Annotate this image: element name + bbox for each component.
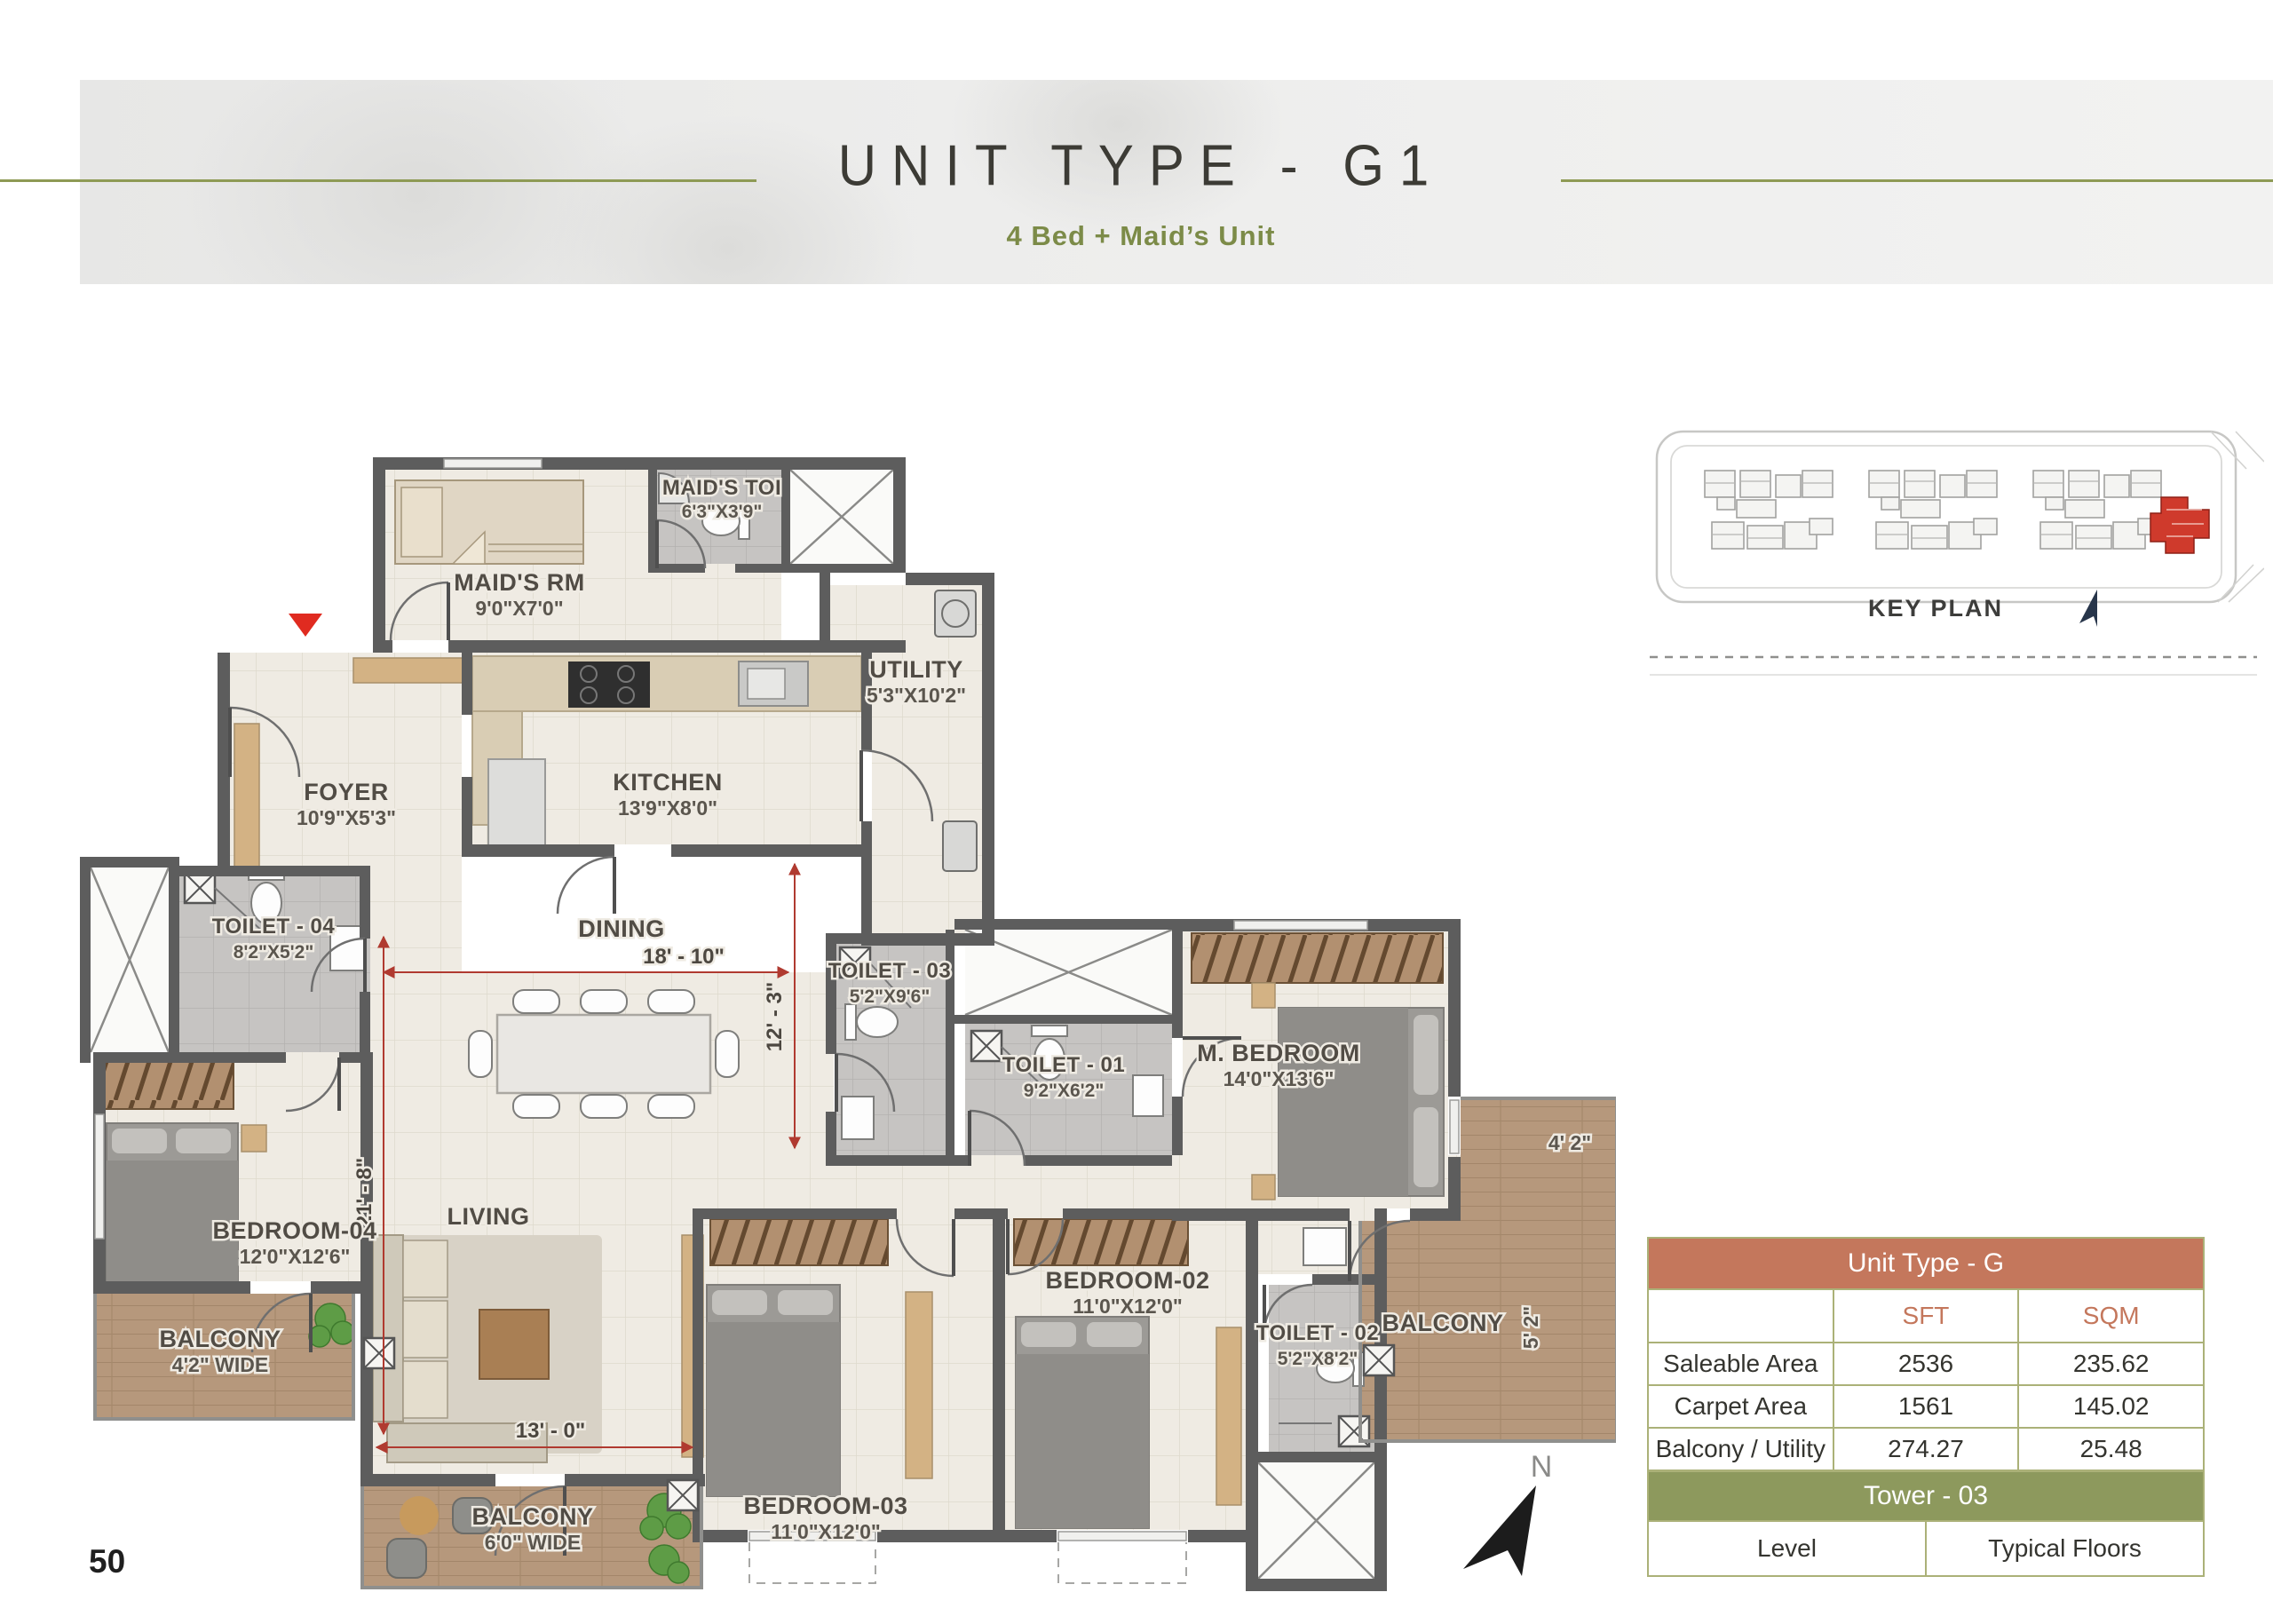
svg-text:5'2"X9'6": 5'2"X9'6" (850, 986, 931, 1007)
svg-text:LIVING: LIVING (447, 1203, 529, 1230)
svg-text:MAID'S TOI: MAID'S TOI (662, 476, 781, 500)
svg-text:TOILET - 01: TOILET - 01 (1002, 1053, 1125, 1077)
area-table-title: Unit Type - G (1648, 1238, 2204, 1289)
floor-plan: 18' - 10" 12' - 3" 21' - 8" 13' - 0" MAI… (71, 440, 1616, 1594)
svg-text:4'2" WIDE: 4'2" WIDE (172, 1353, 268, 1376)
svg-text:9'2"X6'2": 9'2"X6'2" (1024, 1081, 1105, 1101)
table-row: Carpet Area 1561 145.02 (1648, 1385, 2204, 1428)
area-table: Unit Type - G SFT SQM Saleable Area 2536… (1647, 1237, 2205, 1471)
dim-living-width: 13' - 0" (516, 1419, 585, 1443)
area-col-sft: SFT (1833, 1289, 2019, 1343)
table-row: Level Typical Floors (1648, 1521, 2204, 1576)
svg-text:BALCONY: BALCONY (1382, 1310, 1504, 1336)
room-living: LIVING (447, 1203, 529, 1230)
duct-box-icon (1364, 1345, 1394, 1375)
svg-text:5' 2": 5' 2" (1519, 1306, 1542, 1349)
svg-text:5'3"X10'2": 5'3"X10'2" (867, 684, 966, 707)
row-label: Balcony / Utility (1648, 1428, 1833, 1470)
svg-text:DINING: DINING (578, 915, 665, 942)
key-plan-north-icon (2079, 590, 2097, 627)
key-plan-highlight-unit (2150, 497, 2209, 553)
room-kitchen: KITCHEN13'9"X8'0" (613, 769, 723, 820)
tower-level: Level (1648, 1521, 1926, 1576)
svg-text:M. BEDROOM: M. BEDROOM (1197, 1040, 1360, 1066)
svg-text:4' 2": 4' 2" (1548, 1131, 1591, 1154)
svg-text:5'2"X8'2": 5'2"X8'2" (1278, 1349, 1358, 1369)
row-sft: 1561 (1833, 1385, 2019, 1428)
duct-box-icon (364, 1338, 394, 1368)
tower-floors: Typical Floors (1926, 1521, 2204, 1576)
svg-text:BALCONY: BALCONY (160, 1326, 281, 1352)
svg-text:KITCHEN: KITCHEN (613, 769, 723, 796)
page-number: 50 (89, 1543, 125, 1580)
dim-dining-width: 18' - 10" (643, 945, 725, 969)
svg-text:BEDROOM-04: BEDROOM-04 (212, 1217, 376, 1244)
key-plan: KEY PLAN (1643, 416, 2264, 682)
row-sft: 274.27 (1833, 1428, 2019, 1470)
svg-text:BALCONY: BALCONY (472, 1503, 594, 1530)
svg-text:13'9"X8'0": 13'9"X8'0" (618, 796, 717, 820)
header-rule-left (0, 179, 756, 182)
svg-text:6'3"X3'9": 6'3"X3'9" (682, 502, 763, 522)
duct-box-icon (668, 1480, 698, 1510)
svg-text:9'0"X7'0": 9'0"X7'0" (475, 597, 563, 620)
tower-table: Tower - 03 Level Typical Floors (1647, 1470, 2205, 1577)
row-sft: 2536 (1833, 1343, 2019, 1385)
page-title: UNIT TYPE - G1 (693, 132, 1589, 199)
row-sqm: 145.02 (2018, 1385, 2204, 1428)
svg-text:8'2"X5'2": 8'2"X5'2" (234, 942, 314, 963)
svg-text:UTILITY: UTILITY (869, 656, 963, 683)
svg-text:11'0"X12'0": 11'0"X12'0" (1073, 1295, 1183, 1318)
area-col-blank (1648, 1289, 1833, 1343)
svg-text:14'0"X13'6": 14'0"X13'6" (1224, 1067, 1334, 1090)
svg-text:TOILET - 03: TOILET - 03 (828, 959, 951, 983)
north-label: N (1531, 1450, 1553, 1484)
svg-text:TOILET - 02: TOILET - 02 (1256, 1321, 1379, 1345)
svg-text:11'0"X12'0": 11'0"X12'0" (771, 1520, 881, 1543)
key-plan-label: KEY PLAN (1868, 595, 2003, 622)
row-sqm: 25.48 (2018, 1428, 2204, 1470)
header-rule-right (1561, 179, 2273, 182)
dashed-projections (749, 1542, 1186, 1583)
room-balcony-left: BALCONY4'2" WIDE (160, 1326, 281, 1376)
dim-dining-height: 12' - 3" (763, 982, 787, 1051)
svg-text:BEDROOM-03: BEDROOM-03 (743, 1493, 907, 1519)
page-subtitle: 4 Bed + Maid’s Unit (693, 220, 1589, 252)
svg-text:10'9"X5'3": 10'9"X5'3" (297, 806, 396, 829)
room-dining: DINING (578, 915, 665, 942)
room-utility: UTILITY5'3"X10'2" (867, 656, 966, 707)
svg-text:12'0"X12'6": 12'0"X12'6" (240, 1245, 351, 1268)
row-sqm: 235.62 (2018, 1343, 2204, 1385)
row-label: Saleable Area (1648, 1343, 1833, 1385)
svg-text:FOYER: FOYER (304, 779, 389, 805)
svg-text:6'0" WIDE: 6'0" WIDE (485, 1531, 581, 1554)
brochure-page: UNIT TYPE - G1 4 Bed + Maid’s Unit (0, 0, 2273, 1624)
room-foyer: FOYER10'9"X5'3" (297, 779, 396, 829)
svg-text:BEDROOM-02: BEDROOM-02 (1045, 1267, 1209, 1294)
area-col-sqm: SQM (2018, 1289, 2204, 1343)
table-row: Balcony / Utility 274.27 25.48 (1648, 1428, 2204, 1470)
north-arrow-icon: N (1463, 1450, 1552, 1576)
room-balcony-bottom: BALCONY6'0" WIDE (472, 1503, 594, 1554)
svg-text:MAID'S RM: MAID'S RM (454, 569, 584, 596)
row-label: Carpet Area (1648, 1385, 1833, 1428)
entry-arrow-icon (289, 614, 322, 637)
tower-table-title: Tower - 03 (1648, 1471, 2204, 1521)
svg-text:TOILET - 04: TOILET - 04 (212, 915, 336, 939)
table-row: Saleable Area 2536 235.62 (1648, 1343, 2204, 1385)
